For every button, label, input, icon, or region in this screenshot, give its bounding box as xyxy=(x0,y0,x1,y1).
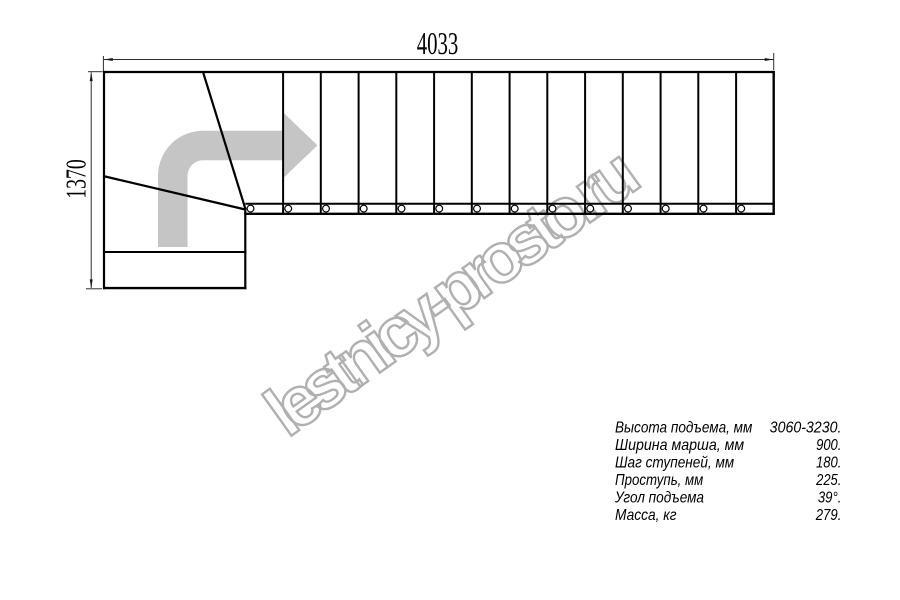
svg-text:Масса, кг: Масса, кг xyxy=(615,507,677,524)
svg-text:3060-3230.: 3060-3230. xyxy=(770,419,842,437)
svg-text:900.: 900. xyxy=(816,437,841,455)
svg-text:39°.: 39°. xyxy=(818,490,842,507)
svg-text:225.: 225. xyxy=(815,472,841,490)
svg-text:Угол подъема: Угол подъема xyxy=(614,490,704,507)
svg-text:4033: 4033 xyxy=(417,25,459,60)
svg-text:279.: 279. xyxy=(815,507,842,524)
svg-text:Шаг ступеней, мм: Шаг ступеней, мм xyxy=(615,455,734,472)
svg-text:180.: 180. xyxy=(816,455,841,473)
svg-text:lestnicy-prosto.ru: lestnicy-prosto.ru xyxy=(251,135,650,451)
svg-text:Проступь, мм: Проступь, мм xyxy=(615,472,703,489)
svg-text:Ширина марша, мм: Ширина марша, мм xyxy=(615,436,745,454)
svg-text:Высота подъема, мм: Высота подъема, мм xyxy=(615,420,752,437)
svg-text:1370: 1370 xyxy=(61,159,93,198)
